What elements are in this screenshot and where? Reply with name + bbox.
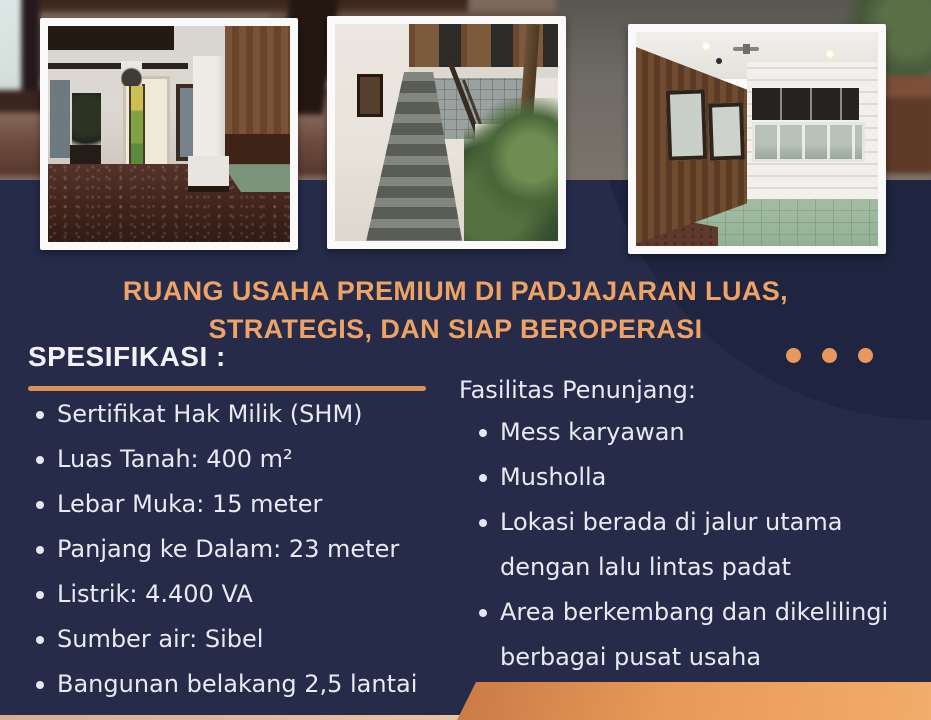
list-item-line: Sertifikat Hak Milik (SHM) — [57, 392, 363, 437]
accent-dots — [786, 348, 873, 363]
list-item-text: Lebar Muka: 15 meter — [57, 482, 322, 527]
fasilitas-list: Mess karyawanMushollaLokasi berada di ja… — [471, 410, 921, 680]
photo-detail — [825, 49, 835, 59]
paneled-room-scene — [636, 32, 878, 246]
list-item-text: Bangunan belakang 2,5 lantai — [57, 662, 417, 707]
photo-detail — [188, 156, 229, 192]
spec-underline — [28, 386, 426, 391]
list-item-line: berbagai pusat usaha — [500, 635, 888, 680]
property-flyer: RUANG USAHA PREMIUM DI PADJAJARAN LUAS,S… — [0, 0, 931, 720]
list-item-line: Panjang ke Dalam: 23 meter — [57, 527, 399, 572]
photo-detail — [752, 88, 858, 120]
bullet-dot — [479, 519, 487, 527]
staircase-photo — [327, 16, 566, 249]
list-item-text: Panjang ke Dalam: 23 meter — [57, 527, 399, 572]
bullet-dot — [36, 546, 44, 554]
bullet-dot — [479, 474, 487, 482]
bullet-dot — [479, 429, 487, 437]
bottom-accent-shape — [455, 682, 931, 720]
photo-detail — [48, 26, 174, 50]
photo-detail — [357, 74, 383, 117]
fasilitas-heading: Fasilitas Penunjang: — [459, 376, 696, 404]
list-item: Bangunan belakang 2,5 lantai — [28, 662, 458, 707]
photo-detail — [225, 134, 290, 164]
list-item-text: Listrik: 4.400 VA — [57, 572, 253, 617]
list-item: Musholla — [471, 455, 921, 500]
list-item-line: Sumber air: Sibel — [57, 617, 263, 662]
wood-paneled-room-photo — [628, 24, 886, 254]
photo-detail — [666, 89, 708, 160]
list-item-line: Musholla — [500, 455, 606, 500]
photo-detail — [40, 0, 468, 12]
accent-dot — [858, 348, 873, 363]
photo-detail — [464, 98, 558, 241]
list-item-text: Musholla — [500, 455, 606, 500]
list-item-text: Lokasi berada di jalur utamadengan lalu … — [500, 500, 842, 590]
list-item-line: Bangunan belakang 2,5 lantai — [57, 662, 417, 707]
bullet-dot — [479, 609, 487, 617]
list-item-line: Luas Tanah: 400 m² — [57, 437, 293, 482]
photo-detail — [50, 80, 69, 158]
list-item-line: Lebar Muka: 15 meter — [57, 482, 322, 527]
bullet-dot — [36, 501, 44, 509]
list-item-line: dengan lalu lintas padat — [500, 545, 842, 590]
list-item-line: Lokasi berada di jalur utama — [500, 500, 842, 545]
photo-detail — [129, 84, 145, 170]
photo-detail — [48, 63, 188, 69]
accent-dot — [786, 348, 801, 363]
list-item-text: Area berkembang dan dikelilingiberbagai … — [500, 590, 888, 680]
list-item: Sertifikat Hak Milik (SHM) — [28, 392, 458, 437]
accent-dot — [822, 348, 837, 363]
lobby-interior-photo — [40, 18, 298, 250]
bullet-dot — [36, 591, 44, 599]
lobby-scene — [48, 26, 290, 242]
list-item: Panjang ke Dalam: 23 meter — [28, 527, 458, 572]
list-item-text: Luas Tanah: 400 m² — [57, 437, 293, 482]
photo-detail — [701, 41, 711, 51]
spec-list: Sertifikat Hak Milik (SHM)Luas Tanah: 40… — [28, 392, 458, 707]
list-item-text: Sumber air: Sibel — [57, 617, 263, 662]
photo-detail — [733, 47, 759, 51]
bullet-dot — [36, 456, 44, 464]
staircase-scene — [335, 24, 558, 241]
list-item: Listrik: 4.400 VA — [28, 572, 458, 617]
photo-detail — [716, 58, 722, 64]
list-item-text: Sertifikat Hak Milik (SHM) — [57, 392, 363, 437]
poster-title-line: RUANG USAHA PREMIUM DI PADJAJARAN LUAS, — [0, 272, 911, 310]
photo-detail — [21, 0, 39, 94]
photo-detail — [0, 90, 46, 112]
list-item: Luas Tanah: 400 m² — [28, 437, 458, 482]
photo-detail — [708, 102, 745, 160]
list-item-text: Mess karyawan — [500, 410, 685, 455]
bullet-dot — [36, 636, 44, 644]
photo-detail — [747, 156, 878, 199]
bullet-dot — [36, 681, 44, 689]
photo-detail — [193, 56, 224, 169]
list-item-line: Mess karyawan — [500, 410, 685, 455]
spec-heading: SPESIFIKASI : — [28, 341, 226, 373]
list-item: Sumber air: Sibel — [28, 617, 458, 662]
photo-detail — [121, 61, 143, 87]
list-item-line: Listrik: 4.400 VA — [57, 572, 253, 617]
list-item: Mess karyawan — [471, 410, 921, 455]
list-item-line: Area berkembang dan dikelilingi — [500, 590, 888, 635]
bullet-dot — [36, 411, 44, 419]
poster-title: RUANG USAHA PREMIUM DI PADJAJARAN LUAS,S… — [0, 272, 911, 348]
list-item: Lebar Muka: 15 meter — [28, 482, 458, 527]
list-item: Area berkembang dan dikelilingiberbagai … — [471, 590, 921, 680]
list-item: Lokasi berada di jalur utamadengan lalu … — [471, 500, 921, 590]
